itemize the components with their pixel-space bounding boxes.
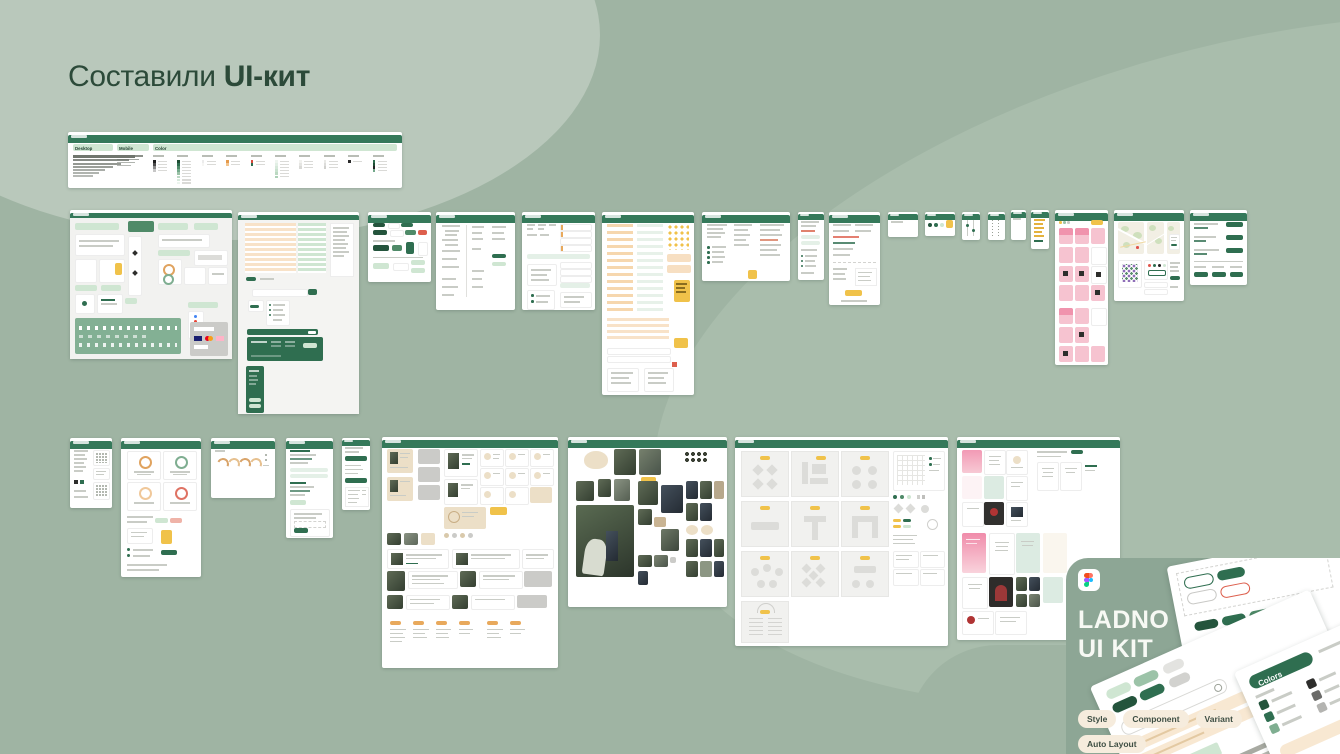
frame-photo-cards (382, 437, 558, 668)
seating-tile (841, 451, 889, 497)
yellow-cta-button (490, 507, 507, 515)
confirm-button (155, 518, 168, 523)
frame-content (70, 218, 232, 359)
frame-maps (1114, 210, 1184, 301)
color-swatch (226, 163, 229, 166)
ring-card (530, 449, 554, 467)
photo-portrait (639, 449, 661, 475)
promo-card: Typography Colors LADNOUI KIT StyleCompo… (1066, 558, 1340, 754)
photo (700, 539, 712, 557)
invitation (962, 476, 982, 499)
donut-green (163, 274, 174, 285)
photo (456, 553, 468, 565)
invitation-pink (962, 450, 982, 473)
color-swatch (177, 182, 180, 185)
color-swatch (153, 169, 156, 172)
frame-content (238, 220, 359, 414)
image-placeholder (418, 467, 440, 482)
photo-portrait (614, 449, 636, 475)
palette-column (251, 155, 273, 185)
yellow-button (1091, 220, 1103, 225)
seating-tile (741, 501, 789, 547)
frame-forms (829, 212, 880, 305)
photo (387, 533, 401, 545)
photo (391, 553, 403, 565)
seating-tile (741, 451, 789, 497)
palette-column (324, 155, 346, 185)
cancel-button (170, 518, 182, 523)
photo (598, 479, 611, 497)
invitation-dark (984, 502, 1004, 525)
map-thumbnail (1147, 222, 1164, 254)
color-swatch (373, 169, 376, 172)
photo (686, 503, 698, 521)
rings-photo (701, 525, 713, 535)
frame-wreath-icons (211, 438, 275, 498)
promo-tags: StyleComponentVariantAuto Layout (1078, 710, 1263, 753)
frame-content (735, 445, 948, 646)
frame-content (702, 220, 790, 281)
spinner-red (175, 487, 188, 500)
frame-mobile-form (342, 438, 370, 510)
ring-card (505, 449, 529, 467)
tag-pill: Variant (1196, 710, 1242, 728)
grid-card (893, 451, 945, 491)
frame-list-items (522, 212, 595, 310)
page-title: Составили UI-кит (68, 60, 310, 94)
frame-sliders-a (962, 212, 980, 240)
frame-seating-plans (735, 437, 948, 646)
frame-sliders-b (988, 212, 1005, 240)
photo (714, 481, 724, 499)
photo (460, 571, 476, 587)
frame-styles-overview: Desktop Mobile Color (68, 132, 402, 188)
menu-label (390, 621, 401, 625)
photo (686, 539, 698, 557)
color-swatch (348, 160, 351, 163)
frame-photo-gallery (568, 437, 727, 607)
palette-column (177, 155, 199, 185)
photo-bride-groom (576, 505, 634, 577)
color-palette-grid (153, 155, 397, 185)
frame-content (1190, 218, 1247, 285)
yellow-dot-grid (667, 224, 689, 250)
frame-menus (702, 212, 790, 281)
full-width-button (345, 456, 367, 461)
selected-row (527, 254, 590, 259)
invite-card (387, 477, 413, 501)
map-pin (1136, 246, 1139, 249)
figma-logo-green (1084, 582, 1089, 587)
color-swatch (251, 163, 254, 166)
slide-canvas: Составили UI-кит Desktop Mobile Color (0, 0, 1340, 754)
invitation-mint-tall (1016, 533, 1040, 573)
frame-buttons (368, 212, 431, 282)
search-bar (252, 289, 308, 297)
payment-card (190, 322, 228, 356)
palette-column (373, 155, 395, 185)
photo (390, 452, 398, 464)
photo (661, 529, 679, 551)
frame-lists-tree (436, 212, 515, 310)
photo (638, 481, 658, 505)
seating-tile (791, 501, 839, 547)
section-label-color: Color (153, 144, 397, 151)
frame-calendar (70, 438, 112, 508)
invitation-ivory (1043, 533, 1067, 573)
frame-icons-misc (70, 210, 232, 359)
seating-tile (741, 551, 789, 597)
sidebar-component (246, 366, 264, 413)
promo-title: LADNOUI KIT (1078, 606, 1169, 664)
photo (700, 481, 712, 499)
rings-photo (686, 525, 698, 535)
ring-card (480, 468, 504, 486)
photo (1016, 594, 1027, 607)
invite-preview (1037, 462, 1059, 491)
frame-links-yellow (1031, 210, 1049, 249)
palette-column (226, 155, 248, 185)
figma-logo-red (1084, 573, 1089, 578)
review-card (452, 549, 520, 569)
color-swatch (324, 166, 327, 169)
frame-content (211, 446, 275, 498)
frame-empty-small (888, 212, 918, 237)
frame-content (1055, 218, 1108, 365)
photo (661, 485, 683, 513)
photo (387, 595, 403, 609)
palette-column (348, 155, 370, 185)
icon-row (79, 326, 177, 330)
section-label-desktop: Desktop (73, 144, 113, 151)
frame-content (121, 446, 201, 577)
figma-logo (1078, 569, 1100, 591)
primary-yellow-button (845, 290, 862, 296)
highlight-swatch (115, 263, 122, 275)
footer-top-bar (247, 329, 318, 335)
frame-settings-form (1190, 210, 1247, 285)
review-card (387, 549, 449, 569)
palette-column (299, 155, 321, 185)
wreath-arc (248, 456, 263, 471)
photo (404, 533, 418, 545)
color-swatch (299, 166, 302, 169)
green-button (1226, 222, 1243, 227)
photo (654, 517, 666, 527)
icon-set-panel (75, 318, 181, 354)
photo (714, 539, 724, 557)
frame-notifications (602, 212, 694, 395)
ring-card (530, 468, 554, 486)
invitation-pink-tall (962, 533, 986, 573)
photo (1029, 577, 1040, 591)
rings-photo (584, 451, 608, 469)
photo (686, 561, 698, 577)
frame-content (70, 446, 112, 508)
background-blob-top-left (0, 0, 600, 240)
tag-pill: Style (1078, 710, 1116, 728)
figma-logo-orange (1089, 573, 1094, 578)
palette-column (275, 155, 297, 185)
seating-tile (841, 551, 889, 597)
seating-tile (841, 501, 889, 547)
frame-content (286, 446, 333, 538)
photo-couple (387, 571, 405, 591)
green-button (1226, 235, 1243, 240)
ring-card (480, 449, 504, 467)
frame-tiny (1011, 210, 1026, 240)
footer-button (303, 343, 317, 348)
sticky-note (748, 270, 757, 279)
photo (1016, 577, 1027, 591)
map-thumbnail (1118, 222, 1144, 254)
frame-content (342, 444, 370, 510)
ring-icon (448, 511, 460, 523)
frame-tables-footer (238, 212, 359, 414)
photo-couple (448, 483, 458, 497)
orange-list-column (607, 224, 633, 312)
invite-card (387, 449, 413, 473)
frame-status-list (798, 212, 824, 280)
seating-tile (791, 451, 839, 497)
palette-column (202, 155, 224, 185)
table-variants-green (298, 223, 326, 273)
invitation-mint (984, 476, 1004, 499)
frame-content (568, 445, 727, 607)
input-beige (1278, 710, 1340, 754)
frame-content (1114, 218, 1184, 301)
frame-content (436, 220, 515, 310)
image-placeholder (418, 449, 440, 464)
photo (714, 561, 724, 577)
color-swatch (202, 163, 205, 166)
palette-column (153, 155, 175, 185)
frame-content (368, 220, 431, 282)
pin-palette-card (1118, 260, 1142, 288)
photo (614, 479, 630, 501)
groom-suit (606, 531, 618, 561)
sticky-note-small (674, 338, 688, 348)
green-list-column (637, 224, 663, 312)
avatar-grid (684, 451, 708, 463)
sticky-note (674, 280, 690, 302)
frame-content (829, 220, 880, 305)
frame-content (602, 220, 694, 395)
photo (576, 481, 594, 501)
frame-content (522, 220, 595, 310)
skeleton-card (194, 250, 228, 266)
green-button (1226, 248, 1243, 253)
spinner-green (175, 456, 188, 469)
full-width-button (345, 478, 367, 483)
profile-card (444, 449, 478, 477)
tag-pill: Auto Layout (1078, 735, 1146, 753)
photo (686, 481, 698, 499)
visa-logo (194, 336, 202, 341)
green-button (161, 550, 177, 555)
tag-pill: Component (1123, 710, 1188, 728)
bride-dress (582, 538, 609, 577)
error-badge (672, 362, 677, 367)
frame-content: Desktop Mobile Color (68, 140, 402, 188)
photo (654, 555, 668, 567)
rings-banner (444, 507, 486, 529)
photo (1029, 594, 1040, 607)
footer-component (247, 337, 323, 361)
invite-preview (1060, 462, 1082, 491)
frame-loaders (121, 438, 201, 577)
frame-content (382, 445, 558, 668)
ring-card (505, 468, 529, 486)
photo (421, 533, 435, 545)
profile-card (444, 479, 478, 505)
spinner-orange (139, 456, 152, 469)
frame-text-links (286, 438, 333, 538)
danger-button (418, 230, 427, 235)
marker-colors-card (1144, 260, 1168, 280)
frame-content (798, 218, 824, 280)
seating-tile (791, 551, 839, 597)
photo (700, 503, 712, 521)
photo (638, 555, 652, 567)
green-button (294, 528, 308, 533)
map-thumbnail (1167, 222, 1180, 254)
frame-chips (925, 212, 955, 236)
klarna-logo (216, 336, 224, 341)
sticky-note (161, 530, 172, 544)
photo (638, 571, 648, 585)
table-variants-peach (245, 223, 296, 273)
orange-table (607, 318, 669, 342)
photo (452, 595, 468, 609)
photo (700, 561, 712, 577)
figma-logo-blue (1089, 578, 1094, 583)
section-label-mobile: Mobile (117, 144, 149, 151)
photo-couple (448, 453, 459, 469)
photo (390, 480, 398, 492)
frame-product-cards-pink (1055, 210, 1108, 365)
photo (638, 509, 652, 525)
invitation-dark-arch (989, 577, 1013, 607)
search-button (308, 289, 317, 295)
color-swatch (275, 176, 278, 179)
image-placeholder (418, 485, 440, 500)
seating-tile-arch (741, 601, 789, 643)
sticky-note (946, 220, 953, 228)
